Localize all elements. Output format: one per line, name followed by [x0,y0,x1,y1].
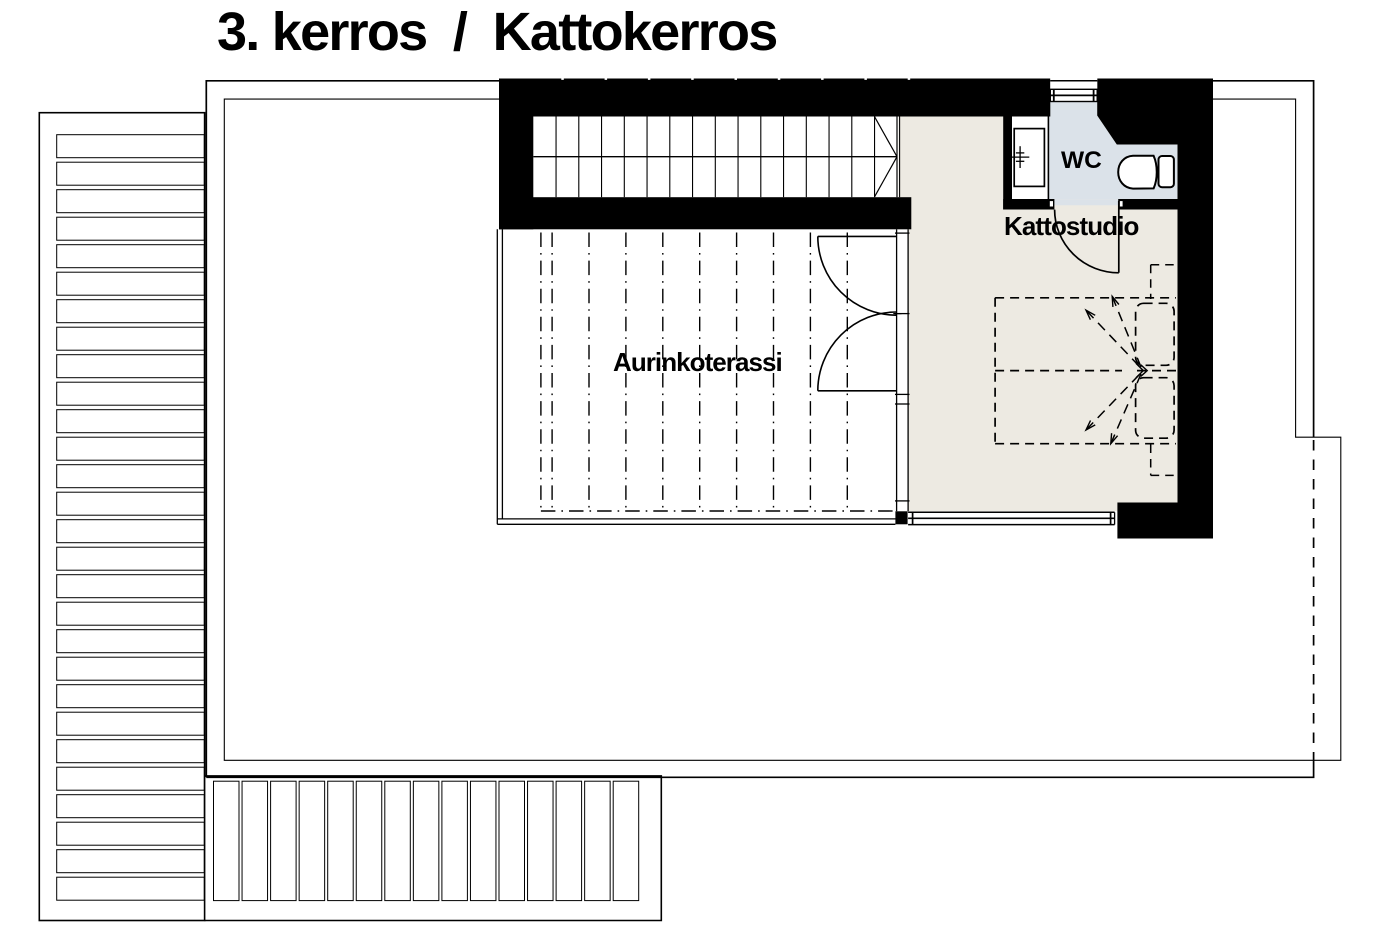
svg-text:Kattostudio: Kattostudio [1004,211,1139,241]
svg-text:Aurinkoterassi: Aurinkoterassi [613,347,782,377]
svg-text:3. kerros / Kattokerros: 3. kerros / Kattokerros [217,2,777,62]
svg-text:WC: WC [1061,147,1102,174]
